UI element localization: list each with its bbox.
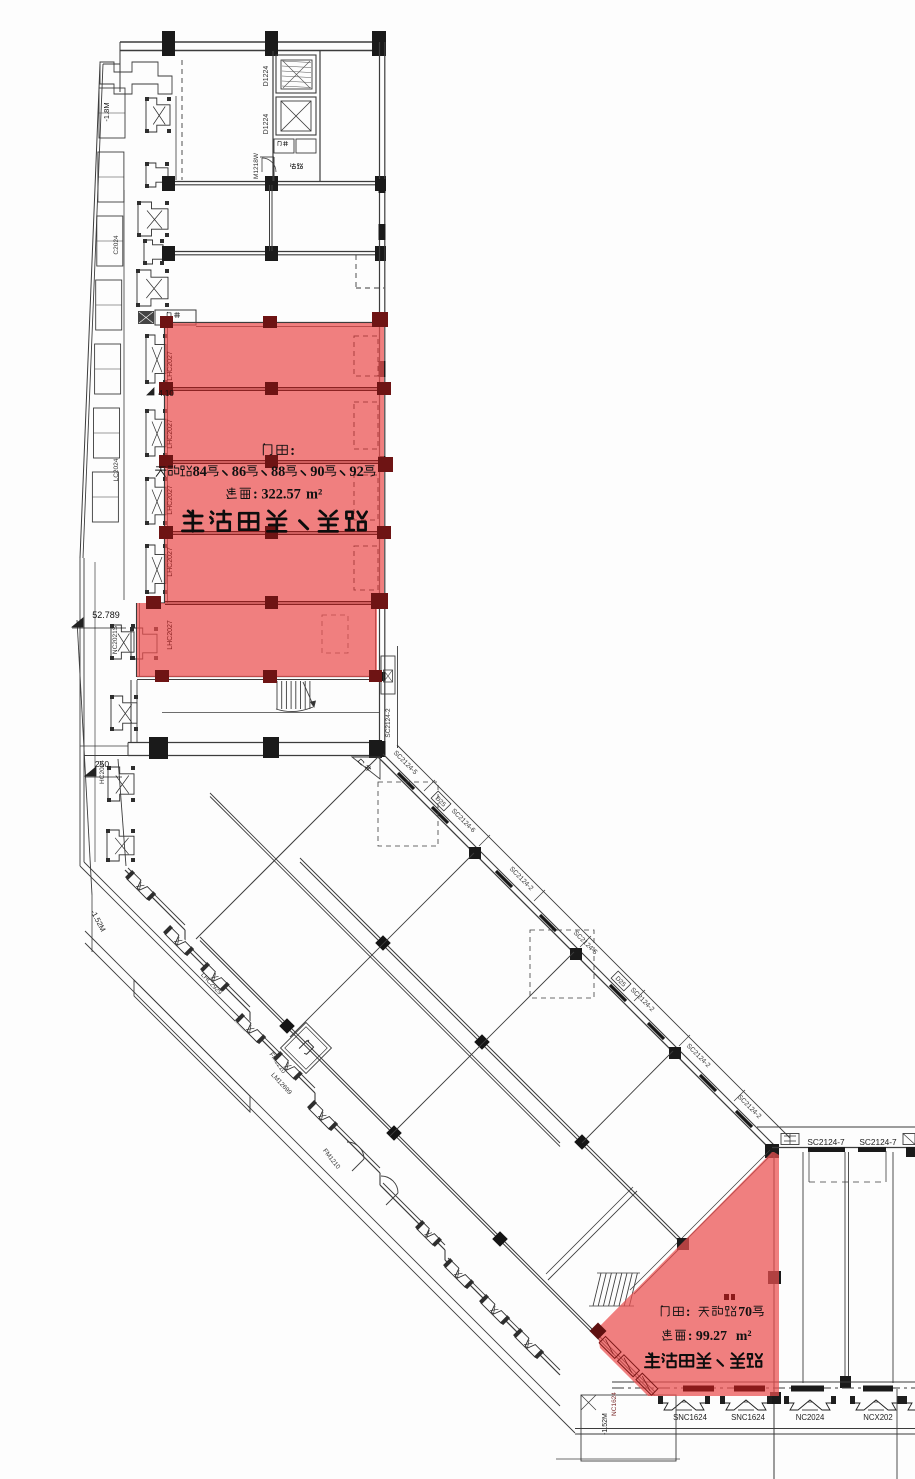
svg-text:SC2124-7: SC2124-7: [807, 1137, 845, 1147]
svg-text:HC2024: HC2024: [99, 760, 106, 784]
svg-text:NC1624: NC1624: [611, 1392, 618, 1416]
svg-text:NC2021S: NC2021S: [112, 625, 119, 654]
svg-text:SNC1624: SNC1624: [731, 1413, 765, 1422]
svg-text:84: 84: [193, 464, 207, 480]
svg-text:NCX202: NCX202: [863, 1413, 892, 1422]
svg-text:70: 70: [738, 1304, 752, 1319]
svg-text:92: 92: [349, 464, 363, 480]
svg-text:SNC1624: SNC1624: [673, 1413, 707, 1422]
svg-text:SC2124-7: SC2124-7: [859, 1137, 897, 1147]
svg-text:D1224: D1224: [263, 114, 270, 135]
svg-text:: 322.57: : 322.57: [253, 487, 301, 503]
svg-text:SC2124-2: SC2124-2: [385, 708, 392, 738]
svg-text:M1218W: M1218W: [253, 152, 260, 179]
svg-text:LC2024: LC2024: [113, 458, 120, 481]
svg-text:m²: m²: [736, 1328, 752, 1343]
svg-text:D1224: D1224: [263, 66, 270, 87]
svg-text:LHC2027: LHC2027: [167, 547, 174, 577]
svg-text:90: 90: [310, 464, 324, 480]
svg-text:52.789: 52.789: [92, 610, 120, 620]
svg-text::: :: [686, 1304, 691, 1319]
svg-text:m²: m²: [306, 487, 322, 503]
svg-text:LHC2027: LHC2027: [167, 485, 174, 515]
svg-text:LHC2027: LHC2027: [167, 419, 174, 449]
svg-text:LHC2027: LHC2027: [167, 351, 174, 381]
svg-text:-1.8M: -1.8M: [102, 102, 111, 121]
svg-text:: 99.27: : 99.27: [688, 1328, 727, 1343]
svg-text:LHC2027: LHC2027: [167, 620, 174, 650]
svg-text:4.10: 4.10: [158, 389, 174, 398]
svg-text:86: 86: [232, 464, 246, 480]
svg-text:88: 88: [271, 464, 285, 480]
svg-text:C2024: C2024: [113, 235, 120, 255]
svg-text:NC2024: NC2024: [796, 1413, 825, 1422]
svg-text:-1.52M: -1.52M: [602, 1413, 609, 1435]
svg-text::: :: [290, 443, 295, 459]
